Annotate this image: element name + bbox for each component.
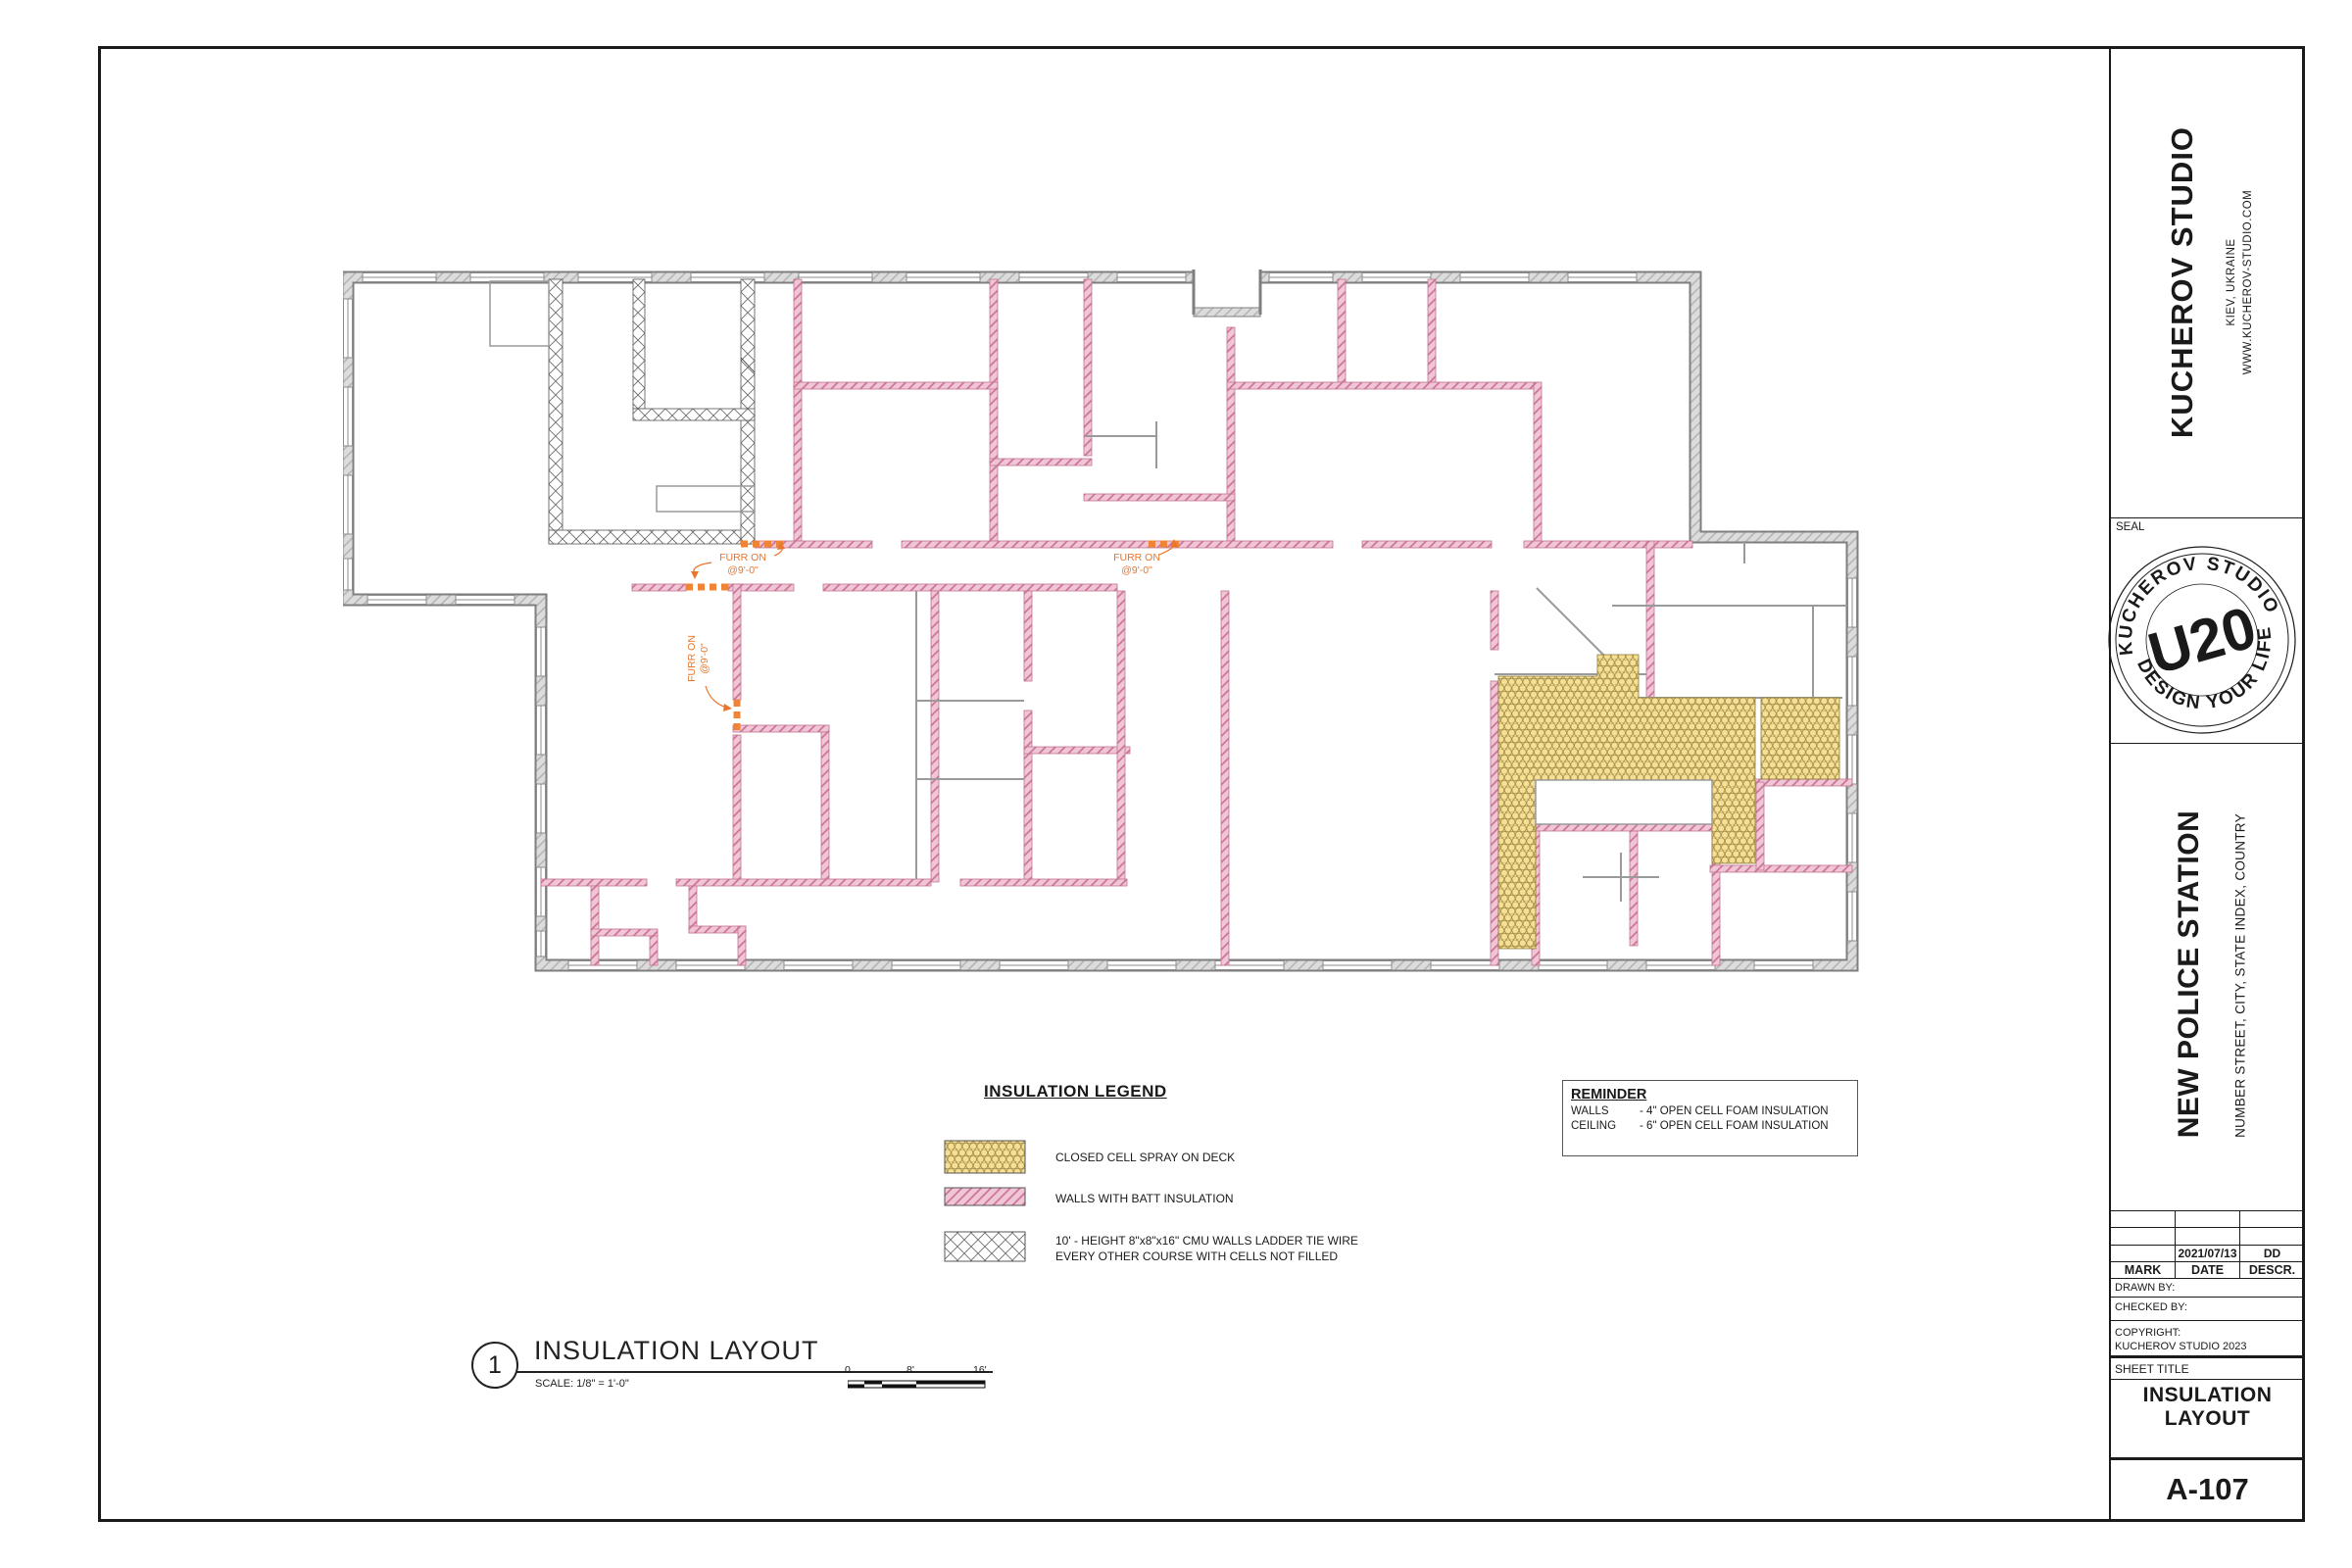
spray-zone-right [1761, 698, 1839, 779]
drawn-by-label: DRAWN BY: [2115, 1282, 2175, 1294]
batt-wall [738, 926, 746, 965]
scale-bar [848, 1380, 990, 1390]
scalebar-tick: 8' [906, 1364, 914, 1376]
reminder-row: WALLS - 4" OPEN CELL FOAM INSULATION [1571, 1105, 1857, 1117]
studio-location: KIEV, UKRAINE [2224, 57, 2240, 508]
batt-wall [1646, 541, 1654, 698]
batt-wall [990, 279, 998, 541]
batt-wall [1491, 591, 1498, 650]
batt-wall [902, 541, 1333, 548]
drawing-title: INSULATION LAYOUT [534, 1336, 819, 1366]
legend-swatch-spray [945, 1141, 1025, 1173]
divider [2111, 743, 2305, 744]
batt-wall [794, 382, 998, 389]
rev-mark [2111, 1245, 2176, 1261]
svg-text:FURR ON: FURR ON [686, 635, 698, 682]
divider [2109, 1457, 2305, 1460]
batt-wall [1756, 782, 1764, 870]
batt-wall [1532, 824, 1714, 831]
batt-wall [1024, 710, 1032, 882]
reminder-item: CEILING [1571, 1120, 1640, 1132]
legend-item-line1: 10' - HEIGHT 8"x8"x16" CMU WALLS LADDER … [1055, 1233, 1358, 1249]
batt-wall [1428, 279, 1436, 382]
legend-item-label: WALLS WITH BATT INSULATION [1055, 1191, 1234, 1206]
reminder-spec: - 6" OPEN CELL FOAM INSULATION [1640, 1120, 1829, 1132]
scalebar-tick: 16' [973, 1364, 987, 1376]
drawing-number-bubble: 1 [471, 1342, 518, 1389]
titleblock-studio: KUCHEROV STUDIO KIEV, UKRAINE WWW.KUCHER… [2111, 48, 2305, 516]
batt-wall [1117, 591, 1125, 882]
batt-wall [755, 541, 872, 548]
rev-descr: DD [2240, 1245, 2305, 1261]
divider [2111, 517, 2305, 518]
svg-text:@9'-0": @9'-0" [699, 643, 710, 674]
drawing-title-rule [516, 1371, 993, 1373]
studio-seal: KUCHEROV STUDIO DESIGN YOUR LIFE U20 [2104, 542, 2300, 738]
batt-wall [1221, 591, 1229, 965]
batt-wall [1362, 541, 1492, 548]
batt-wall [632, 584, 686, 591]
checked-by-row: CHECKED BY: [2110, 1299, 2305, 1317]
titleblock-project: NEW POLICE STATION NUMBER STREET, CITY, … [2111, 745, 2305, 1210]
divider [2110, 1297, 2305, 1298]
svg-text:FURR ON: FURR ON [719, 552, 766, 563]
studio-website: WWW.KUCHEROV-STUDIO.COM [2240, 57, 2257, 508]
reminder-spec: - 4" OPEN CELL FOAM INSULATION [1640, 1105, 1829, 1117]
batt-wall [794, 279, 802, 541]
batt-wall [733, 735, 741, 882]
reminder-row: CEILING - 6" OPEN CELL FOAM INSULATION [1571, 1120, 1857, 1132]
batt-insulated-walls [541, 279, 1852, 965]
col-descr: DESCR. [2240, 1261, 2305, 1278]
batt-wall [1524, 541, 1692, 548]
table-row [2111, 1228, 2305, 1245]
batt-wall [1084, 279, 1092, 456]
batt-wall [1534, 382, 1542, 541]
batt-wall [1338, 279, 1346, 382]
col-date: DATE [2176, 1261, 2240, 1278]
sheet-number: A-107 [2110, 1472, 2305, 1507]
revision-table: 2021/07/13 DD MARK DATE DESCR. [2110, 1210, 2305, 1279]
batt-wall [1630, 831, 1638, 946]
batt-wall [990, 459, 1092, 465]
svg-text:@9'-0": @9'-0" [1121, 564, 1152, 576]
sheet-title-label: SHEET TITLE [2110, 1360, 2305, 1376]
legend-swatch-batt [945, 1188, 1025, 1205]
divider [2110, 1379, 2305, 1380]
sheet-title: INSULATION LAYOUT [2110, 1384, 2305, 1431]
legend-item-label: CLOSED CELL SPRAY ON DECK [1055, 1150, 1235, 1165]
floor-plan: FURR ON @9'-0" FURR ON @9'-0" FURR ON @9… [343, 265, 1901, 980]
partition-line [490, 281, 549, 346]
batt-wall [1710, 865, 1852, 872]
batt-wall [1227, 327, 1235, 541]
partition-line [657, 486, 755, 512]
divider [2109, 1355, 2305, 1358]
svg-text:FURR ON: FURR ON [1113, 552, 1160, 563]
batt-wall [676, 879, 931, 886]
entry-recess [1194, 269, 1260, 317]
drawing-scale: SCALE: 1/8" = 1'-0" [535, 1378, 629, 1390]
batt-wall [821, 732, 829, 882]
project-name: NEW POLICE STATION [2173, 719, 2206, 1229]
drawn-by-row: DRAWN BY: [2110, 1280, 2305, 1297]
exterior-wall-outline [348, 277, 1852, 965]
partition-line [1537, 588, 1605, 657]
studio-name: KUCHEROV STUDIO [2165, 37, 2200, 527]
legend-item-line2: EVERY OTHER COURSE WITH CELLS NOT FILLED [1055, 1249, 1358, 1264]
batt-wall [1024, 591, 1032, 681]
batt-wall [823, 584, 1117, 591]
room [1536, 780, 1712, 824]
reminder-box: REMINDER WALLS - 4" OPEN CELL FOAM INSUL… [1562, 1080, 1858, 1156]
batt-wall [591, 886, 599, 965]
legend-item-label: 10' - HEIGHT 8"x8"x16" CMU WALLS LADDER … [1055, 1233, 1358, 1264]
legend-title: INSULATION LEGEND [984, 1082, 1167, 1102]
col-mark: MARK [2111, 1261, 2176, 1278]
copyright-row: COPYRIGHT: KUCHEROV STUDIO 2023 [2110, 1324, 2305, 1353]
table-row: 2021/07/13 DD [2111, 1245, 2305, 1261]
divider [2110, 1320, 2305, 1321]
batt-wall [960, 879, 1127, 886]
reminder-item: WALLS [1571, 1105, 1640, 1117]
batt-wall [733, 725, 829, 732]
batt-wall [689, 926, 746, 933]
batt-wall [1024, 747, 1130, 754]
copyright-value: KUCHEROV STUDIO 2023 [2115, 1341, 2246, 1352]
batt-wall [650, 936, 658, 965]
copyright-label: COPYRIGHT: [2115, 1327, 2180, 1339]
exterior-wall-fill [348, 277, 1852, 965]
table-header-row: MARK DATE DESCR. [2111, 1261, 2305, 1278]
rev-date: 2021/07/13 [2176, 1245, 2240, 1261]
table-row [2111, 1211, 2305, 1228]
legend-swatches [944, 1137, 1032, 1269]
batt-wall [591, 929, 658, 936]
legend-swatch-cmu [945, 1232, 1025, 1261]
project-address: NUMBER STREET, CITY, STATE INDEX, COUNTR… [2233, 721, 2248, 1231]
batt-wall [541, 879, 647, 886]
batt-wall [1227, 382, 1534, 389]
batt-wall [1084, 494, 1235, 501]
svg-text:@9'-0": @9'-0" [727, 564, 759, 576]
batt-wall [931, 591, 939, 882]
reminder-title: REMINDER [1571, 1087, 1857, 1102]
scalebar-tick: 0 [845, 1364, 851, 1376]
furr-note-2: FURR ON @9'-0" [686, 635, 732, 711]
batt-wall [733, 584, 741, 700]
batt-wall [1491, 681, 1498, 965]
seal-label: SEAL [2116, 521, 2144, 533]
checked-by-label: CHECKED BY: [2115, 1301, 2187, 1313]
cmu-room [549, 279, 755, 544]
